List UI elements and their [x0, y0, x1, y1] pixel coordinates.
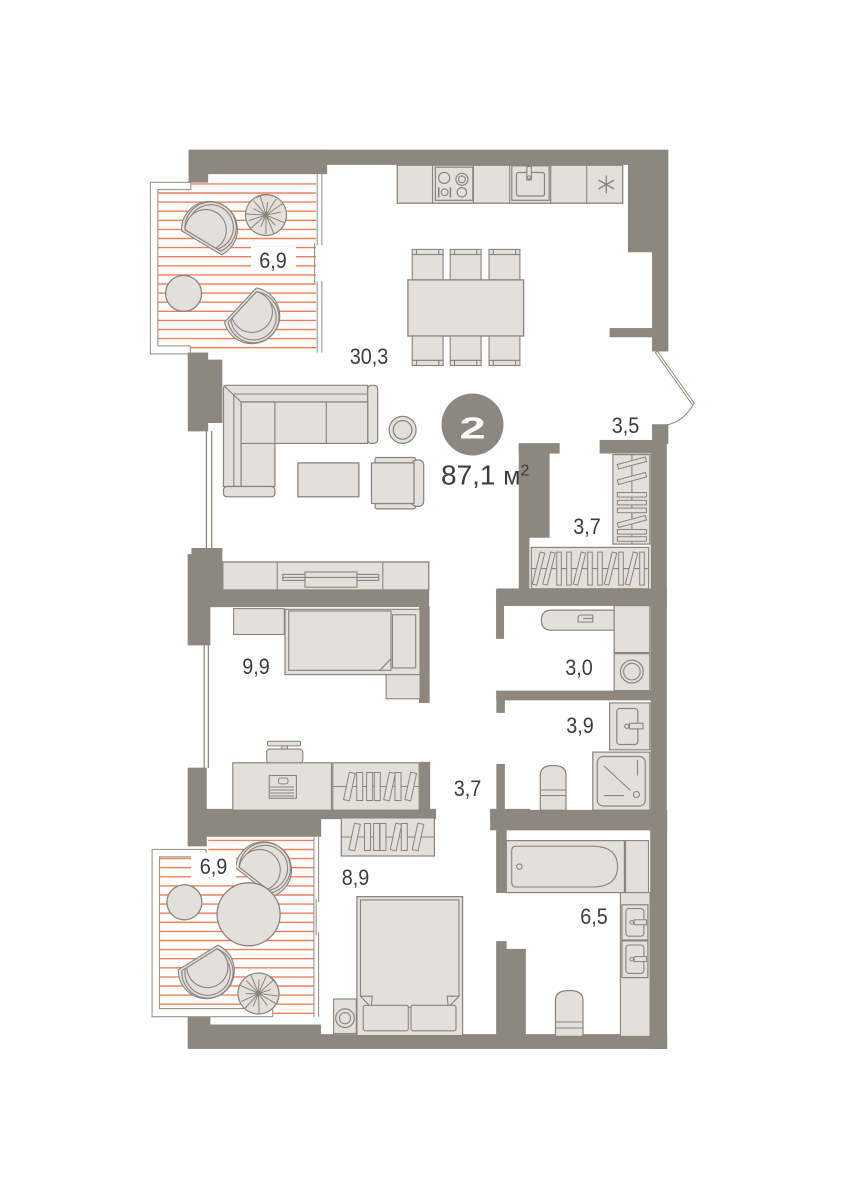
svg-text:8,9: 8,9: [342, 866, 370, 890]
svg-text:3,9: 3,9: [566, 714, 594, 738]
svg-text:30,3: 30,3: [350, 345, 389, 369]
svg-text:3,7: 3,7: [573, 515, 601, 539]
svg-text:6,5: 6,5: [580, 905, 608, 929]
svg-text:3,0: 3,0: [565, 656, 593, 680]
svg-text:87,1 м2: 87,1 м2: [441, 460, 529, 491]
svg-text:2: 2: [459, 412, 485, 446]
svg-text:6,9: 6,9: [259, 249, 287, 273]
svg-text:3,5: 3,5: [612, 414, 640, 438]
svg-text:9,9: 9,9: [242, 655, 270, 679]
svg-text:3,7: 3,7: [454, 777, 482, 801]
svg-text:6,9: 6,9: [200, 855, 228, 879]
